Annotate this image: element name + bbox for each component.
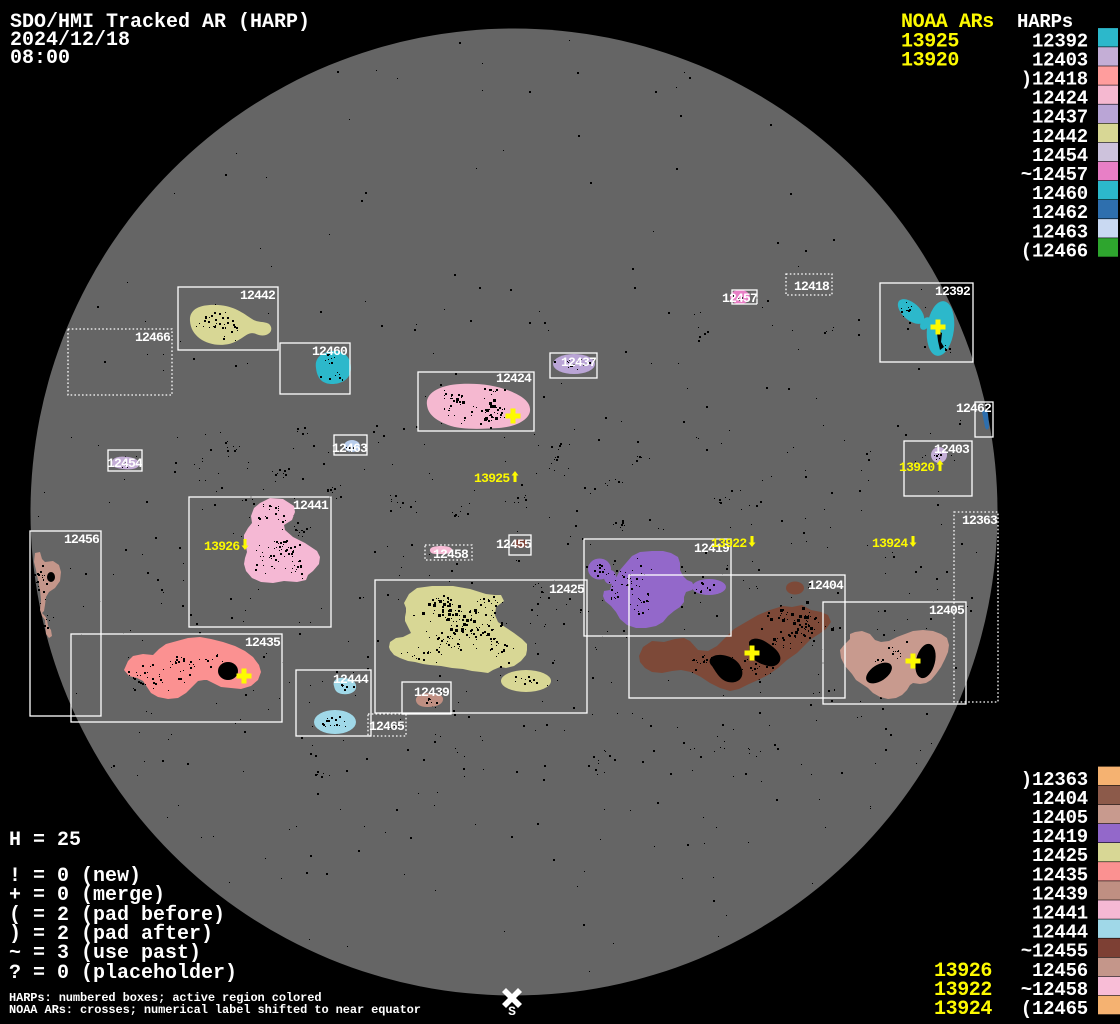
svg-text:13920: 13920 (899, 460, 935, 475)
svg-text:12457: 12457 (722, 291, 757, 306)
svg-text:12418: 12418 (794, 279, 830, 294)
svg-text:? = 0 (placeholder): ? = 0 (placeholder) (9, 962, 237, 985)
svg-text:S: S (508, 1004, 516, 1019)
svg-text:13922: 13922 (711, 536, 747, 551)
svg-text:12437: 12437 (561, 355, 596, 370)
svg-text:13926: 13926 (204, 539, 240, 554)
svg-text:12403: 12403 (934, 442, 970, 457)
svg-text:12439: 12439 (414, 685, 450, 700)
svg-text:12458: 12458 (433, 547, 469, 562)
svg-text:12460: 12460 (312, 344, 348, 359)
svg-text:H = 25: H = 25 (9, 829, 81, 852)
svg-text:12363: 12363 (962, 513, 998, 528)
svg-text:12441: 12441 (293, 498, 329, 513)
svg-text:(12465: (12465 (1021, 998, 1088, 1020)
svg-text:13924: 13924 (872, 536, 908, 551)
svg-text:(12466: (12466 (1021, 240, 1088, 262)
svg-text:13925: 13925 (474, 471, 510, 486)
svg-text:12392: 12392 (935, 284, 971, 299)
svg-text:12444: 12444 (333, 672, 369, 687)
svg-text:12405: 12405 (929, 603, 965, 618)
svg-text:12463: 12463 (332, 441, 368, 456)
svg-text:NOAA ARs: crosses; numerical l: NOAA ARs: crosses; numerical label shift… (9, 1003, 421, 1017)
svg-text:12466: 12466 (135, 330, 171, 345)
svg-text:12425: 12425 (549, 582, 585, 597)
svg-text:12465: 12465 (369, 719, 405, 734)
svg-text:12454: 12454 (107, 456, 143, 471)
svg-text:12435: 12435 (245, 635, 281, 650)
svg-text:12462: 12462 (956, 401, 992, 416)
svg-text:12442: 12442 (240, 288, 276, 303)
svg-text:13924: 13924 (934, 998, 992, 1021)
svg-text:12456: 12456 (64, 532, 100, 547)
svg-text:13920: 13920 (901, 50, 959, 73)
svg-text:12424: 12424 (496, 371, 532, 386)
svg-text:12404: 12404 (808, 578, 844, 593)
svg-text:12455: 12455 (496, 537, 532, 552)
svg-text:08:00: 08:00 (10, 47, 70, 70)
